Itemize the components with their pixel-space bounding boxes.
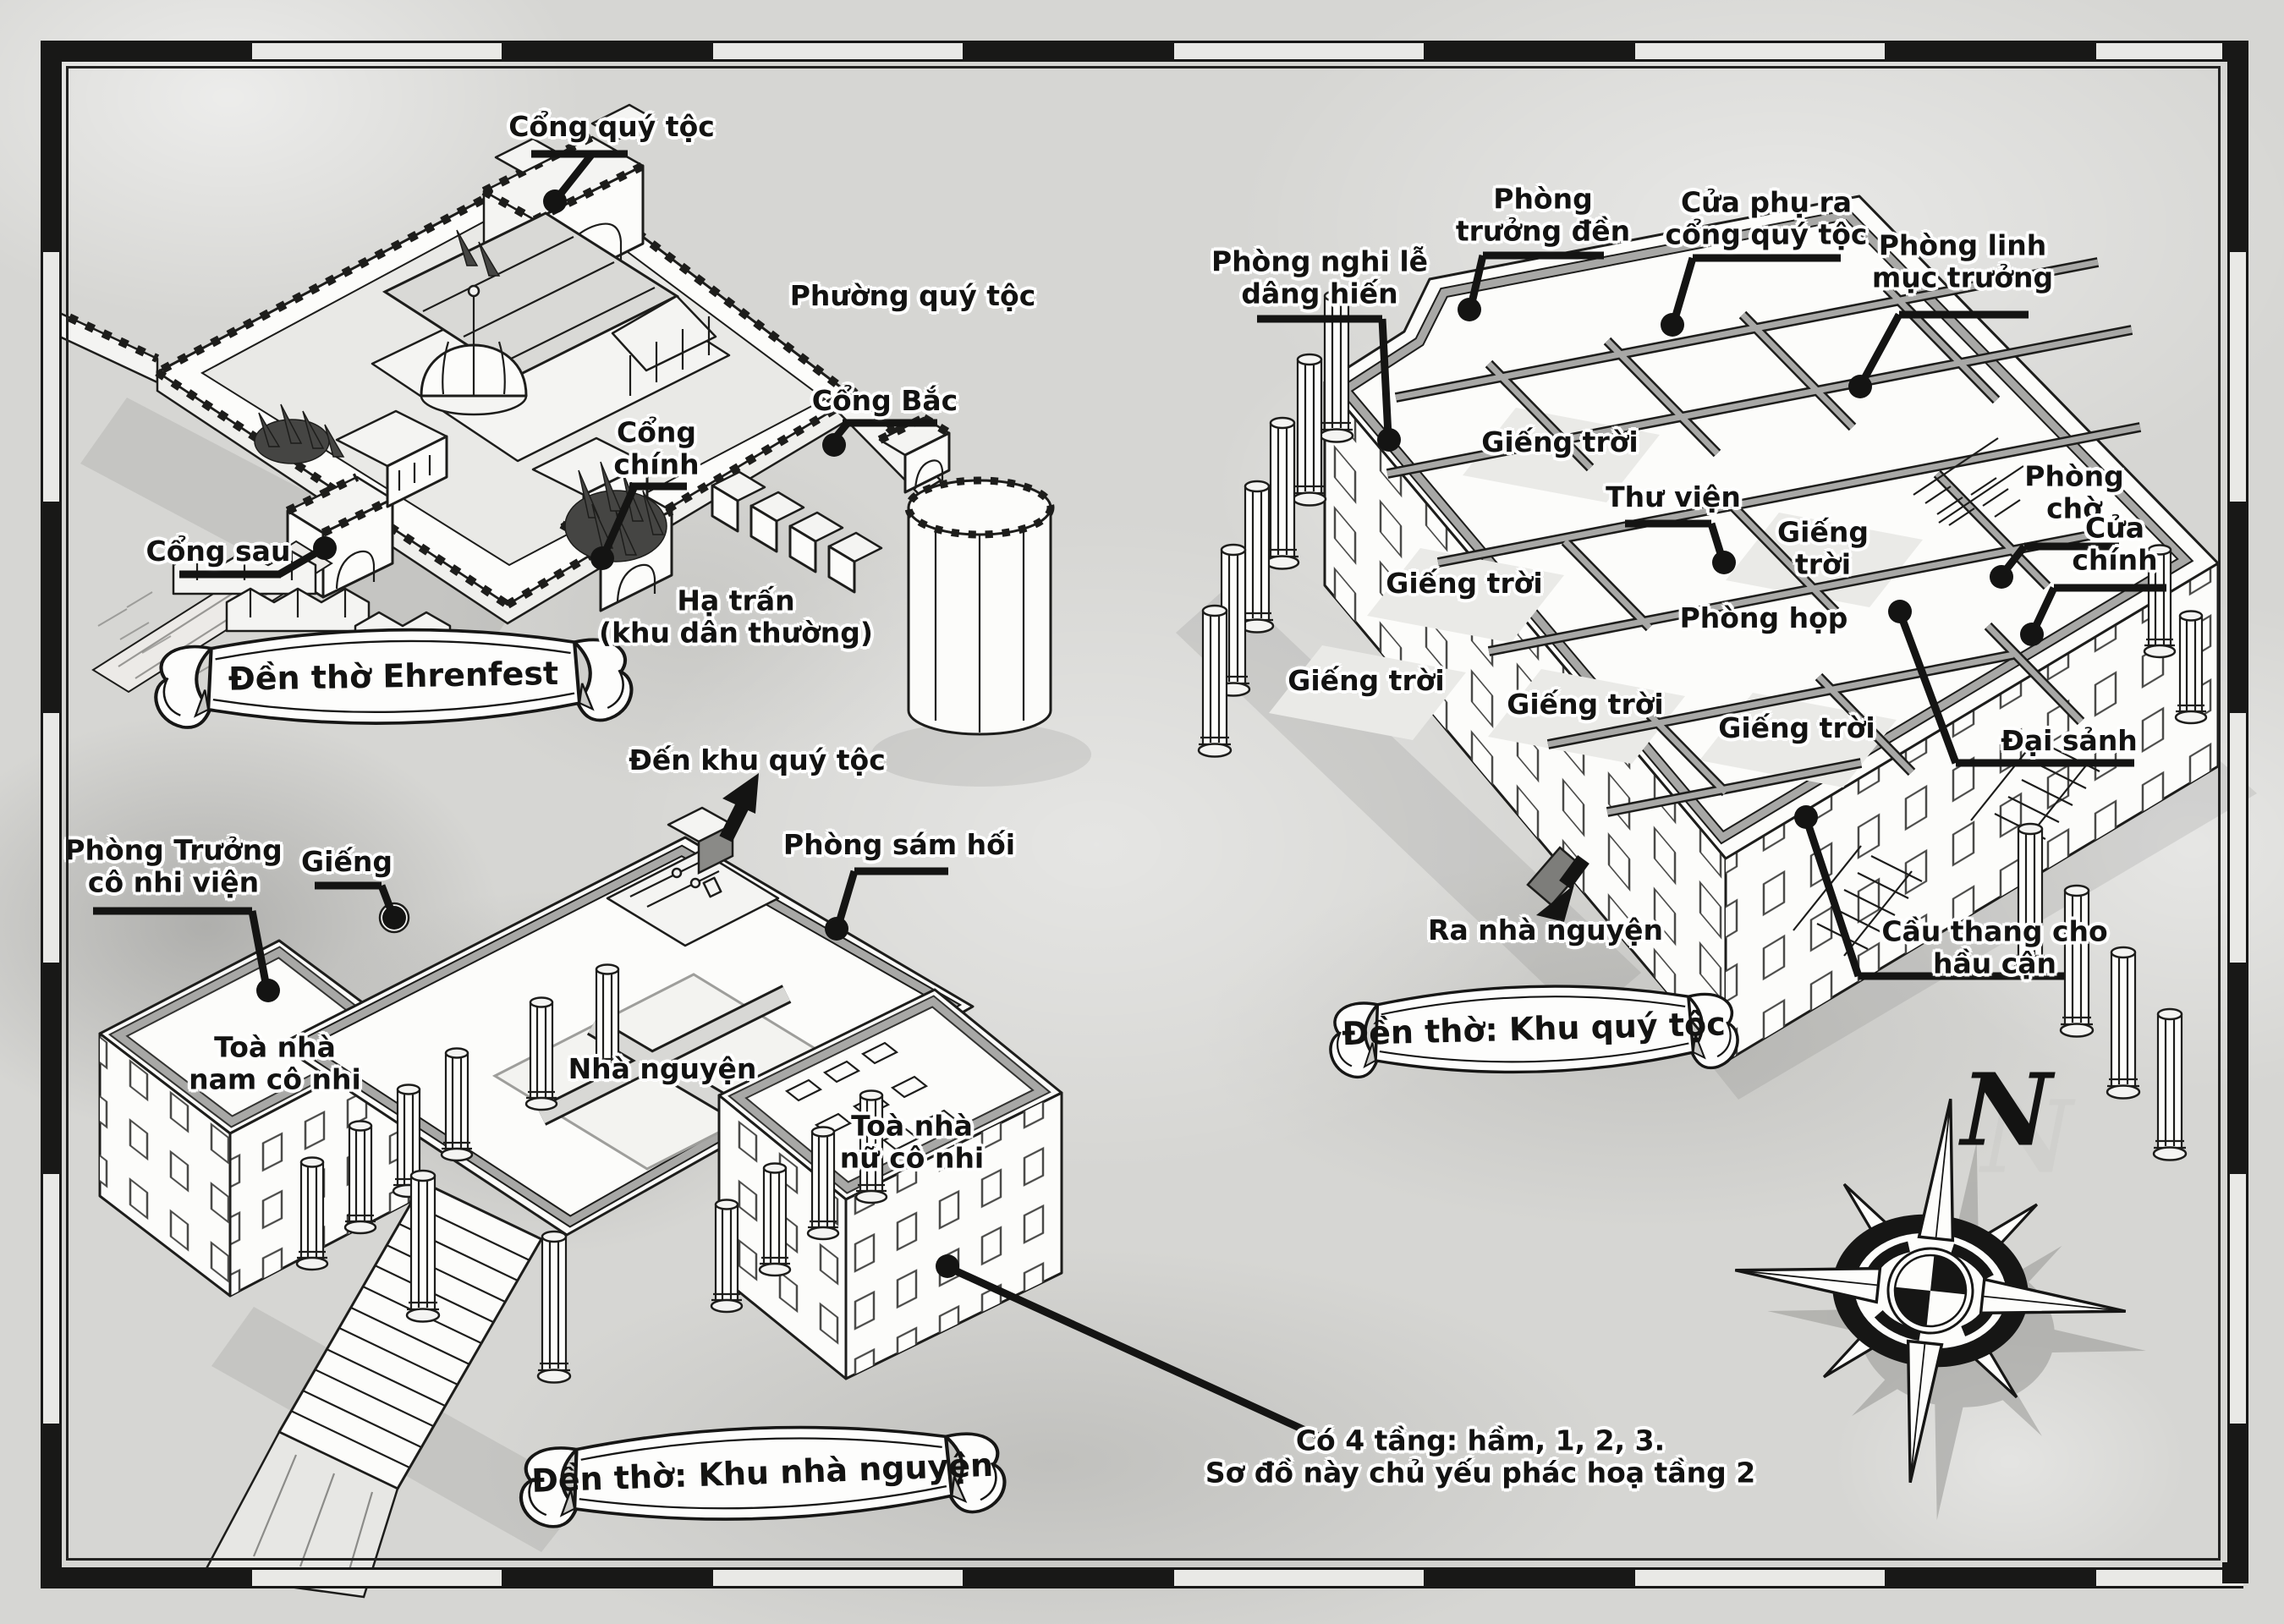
label-orphanage-director-room: Phòng Trưởng cô nhi viện: [64, 834, 282, 897]
label-back-gate: Cổng sau: [146, 535, 291, 568]
label-noble-gate: Cổng quý tộc: [508, 111, 715, 143]
label-head-priest-room: Phòng linh mục trưởng: [1872, 229, 2053, 293]
label-skylight: Giếng trời: [1718, 712, 1875, 744]
label-skylight: Giếng trời: [1771, 516, 1876, 579]
banner-overview: Đền thờ Ehrenfest: [228, 656, 559, 698]
label-chapel-hall: Nhà nguyện: [568, 1053, 757, 1085]
frame-border-right: [2227, 41, 2248, 1583]
label-repentance-room: Phòng sám hối: [783, 829, 1015, 861]
label-north-gate: Cổng Bắc: [812, 385, 958, 417]
label-servant-stairs: Cầu thang cho hầu cận: [1850, 915, 2139, 979]
label-to-noble-area: Đến khu quý tộc: [629, 744, 886, 776]
label-great-hall: Đại sảnh: [2001, 725, 2138, 757]
label-skylight: Giếng trời: [1287, 665, 1444, 697]
column: [1320, 291, 1353, 442]
label-skylight: Giếng trời: [1507, 689, 1663, 721]
label-noble-quarter: Phường quý tộc: [790, 280, 1036, 312]
label-library: Thư viện: [1606, 481, 1741, 513]
label-skylight: Giếng trời: [1386, 568, 1542, 600]
compass-rose: [1711, 1078, 2171, 1541]
label-temple-head-room: Phòng trưởng đền: [1456, 183, 1630, 246]
frame-border-top: [41, 41, 2243, 62]
label-boys-building: Toà nhà nam cô nhi: [189, 1031, 361, 1095]
leader-note: [949, 1268, 1318, 1436]
frame-corner: [2222, 41, 2243, 62]
map-page: Cổng quý tộc Phường quý tộc Cổng Bắc Cổn…: [0, 0, 2284, 1624]
label-main-door: Cửa chính: [2072, 512, 2157, 575]
label-main-gate: Cổng chính: [613, 416, 699, 480]
label-dedication-room: Phòng nghi lễ dâng hiến: [1211, 245, 1428, 309]
label-to-chapel: Ra nhà nguyện: [1428, 914, 1663, 946]
floor-note: Có 4 tầng: hầm, 1, 2, 3. Sơ đồ này chủ y…: [1205, 1424, 1755, 1488]
label-lower-town: Hạ trấn (khu dân thường): [599, 584, 873, 648]
label-girls-building: Toà nhà nữ cô nhi: [840, 1110, 985, 1173]
label-side-door: Cửa phụ ra cổng quý tộc: [1666, 186, 1868, 250]
label-skylight: Giếng trời: [1481, 426, 1638, 458]
frame-border-left: [41, 41, 62, 1583]
frame-corner: [41, 41, 62, 62]
compass-north-label: N: [1961, 1051, 2052, 1169]
frame-corner: [41, 1562, 62, 1583]
frame-corner: [2222, 1562, 2243, 1583]
label-well: Giếng: [301, 846, 393, 878]
leader-repentance: [838, 871, 948, 925]
label-meeting-room: Phòng họp: [1680, 602, 1848, 634]
frame-border-bottom: [41, 1567, 2243, 1588]
